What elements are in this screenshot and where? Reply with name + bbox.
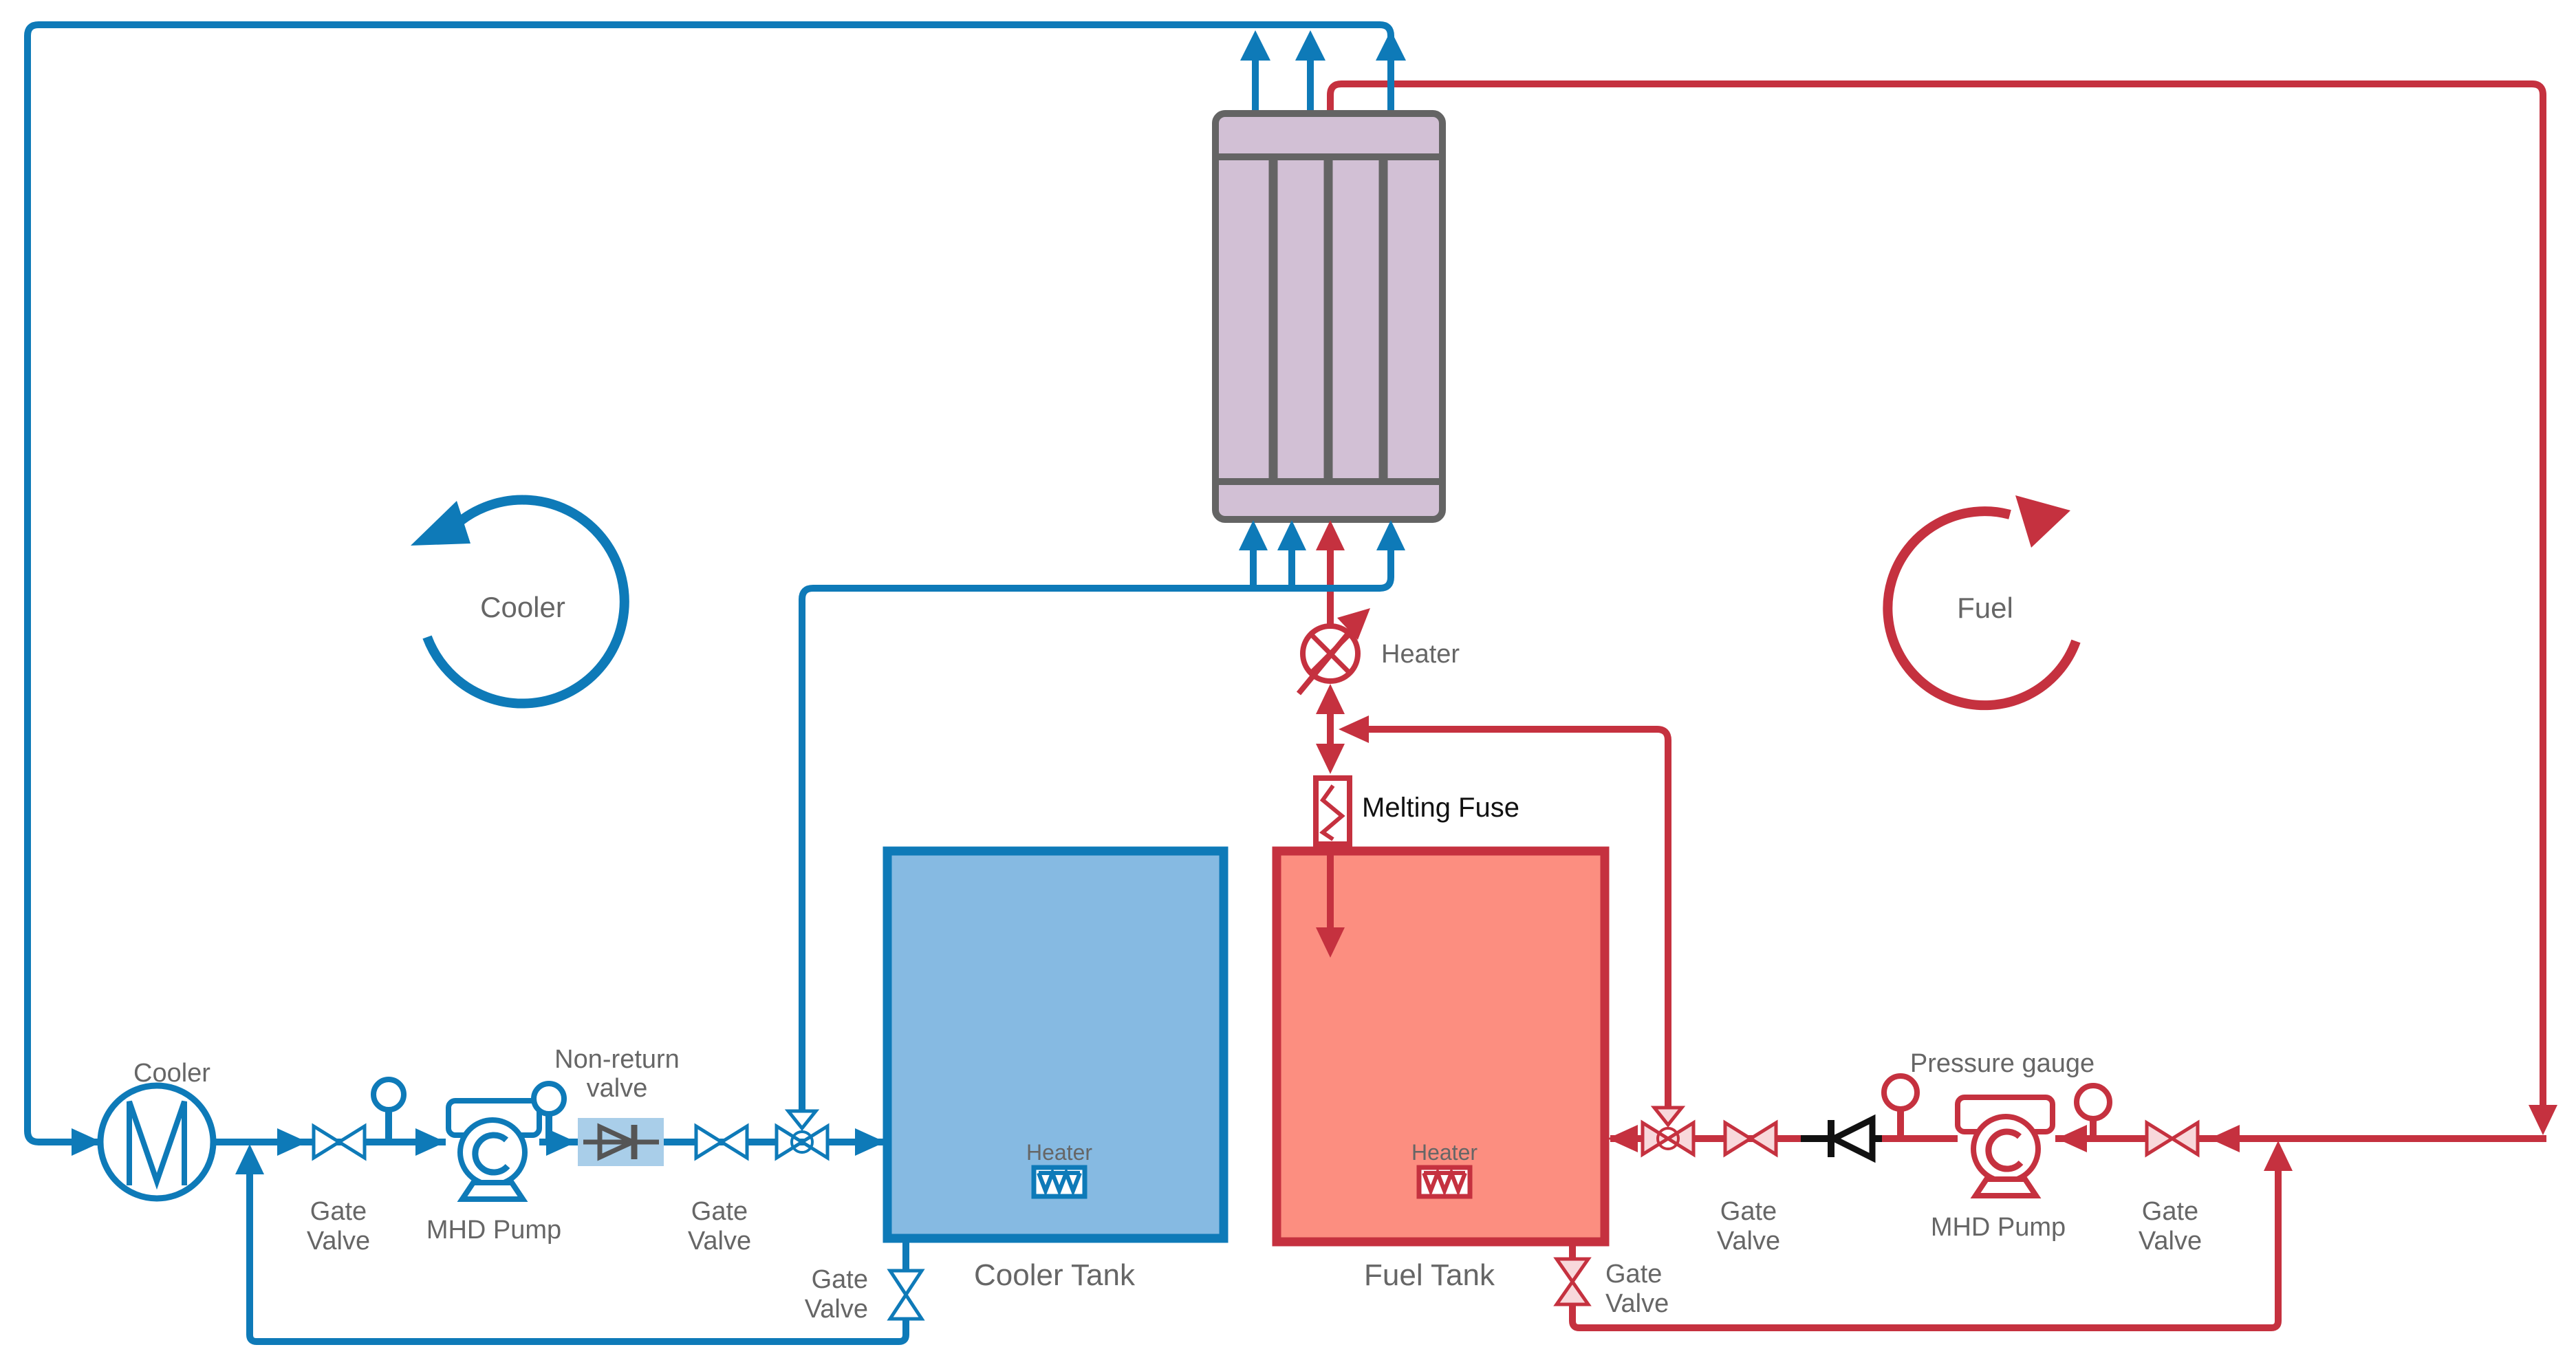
gauge-icon [534, 1084, 564, 1114]
gate-valve-label: Gate [2142, 1197, 2198, 1226]
pressure-gauge-icon [1884, 1076, 1917, 1109]
fuel-loop-label: Fuel [1957, 592, 2013, 624]
check-valve-black [1831, 1119, 1872, 1158]
melting-fuse-label: Melting Fuse [1362, 793, 1519, 823]
flow-arrow-icon [2057, 1125, 2087, 1152]
gate-valve-label: Gate [812, 1265, 868, 1294]
gauge-icon [2077, 1086, 2110, 1119]
gauge-icon [374, 1079, 404, 1110]
fuel-loop-arrowhead-icon [2015, 495, 2070, 548]
flow-arrow-icon [1608, 1125, 1638, 1152]
mhd-pump-fuel: MHD Pump [1931, 1097, 2066, 1242]
piping-diagram: Heater Cooler Tank Heater Fuel Tank Cool… [0, 0, 2576, 1367]
gate-valve-label: Gate [310, 1197, 367, 1226]
flow-arrow-icon [2529, 1105, 2557, 1135]
pump-base-icon [1976, 1179, 2036, 1196]
gate-valve-fuel-1: Gate Valve [1717, 1123, 1780, 1256]
fuel-tank: Heater Fuel Tank [1277, 851, 1605, 1292]
pressure-gauge-label: Pressure gauge [1910, 1049, 2095, 1078]
heater-label: Heater [1381, 640, 1460, 669]
heat-exchanger [1215, 114, 1442, 519]
mhd-pump-label: MHD Pump [426, 1216, 561, 1245]
melting-fuse: Melting Fuse [1316, 778, 1519, 844]
gate-valve-label: Valve [688, 1227, 751, 1256]
cooler-loop-arrowhead-icon [411, 501, 470, 546]
gate-valve-label: Valve [805, 1295, 868, 1324]
gate-valve-label: Valve [2139, 1227, 2202, 1256]
flow-arrow-icon [235, 1144, 264, 1174]
non-return-valve-label: Non-return [554, 1045, 680, 1074]
gate-valve-cooler-1: Gate Valve [307, 1126, 370, 1256]
cooler-loop-arrow: Cooler [411, 500, 625, 704]
cooler-unit-label: Cooler [133, 1059, 210, 1088]
cooler-tank-heater-label: Heater [1026, 1140, 1092, 1165]
cooler-tank: Heater Cooler Tank [887, 851, 1224, 1292]
cooler-unit: Cooler [100, 1059, 213, 1198]
flow-arrow-icon [1239, 520, 1268, 550]
gate-valve-label: Valve [1605, 1289, 1669, 1318]
non-return-valve-label: valve [587, 1074, 648, 1103]
instrument-gauge-blue-1 [374, 1079, 404, 1142]
cooler-tank-label: Cooler Tank [974, 1258, 1136, 1292]
flow-arrow-icon [72, 1128, 102, 1156]
flow-arrow-icon [855, 1128, 885, 1156]
flow-arrow-icon [2209, 1125, 2240, 1152]
fuel-tank-label: Fuel Tank [1364, 1258, 1495, 1292]
flow-arrow-icon [1316, 684, 1345, 714]
check-valve-icon [1834, 1119, 1872, 1158]
flow-arrow-icon [1376, 30, 1406, 61]
gate-valve-cooler-tank-bottom: Gate Valve [805, 1265, 922, 1324]
mhd-pump-cooler: MHD Pump [426, 1101, 561, 1245]
gate-valve-cooler-2: Gate Valve [688, 1126, 751, 1256]
gate-valve-label: Gate [1720, 1197, 1777, 1226]
gate-valve-label: Gate [691, 1197, 748, 1226]
gate-valve-fuel-2: Gate Valve [2139, 1123, 2202, 1256]
three-way-valve-fuel [1643, 1108, 1693, 1154]
cooler-tank-heater-icon [1034, 1167, 1085, 1196]
gate-valve-label: Gate [1605, 1260, 1662, 1289]
flow-arrow-icon [415, 1128, 446, 1156]
inline-heater: Heater [1299, 608, 1460, 693]
mhd-pump-label: MHD Pump [1931, 1213, 2066, 1242]
non-return-valve: Non-return valve [554, 1045, 680, 1166]
flow-arrow-icon [1240, 30, 1270, 61]
fuel-tank-heater-label: Heater [1411, 1140, 1478, 1165]
flow-arrow-icon [1277, 520, 1306, 550]
fuel-tank-heater-icon [1419, 1167, 1470, 1196]
flow-arrow-icon [1376, 520, 1405, 550]
flow-arrow-icon [546, 1128, 576, 1156]
piping-diagram-canvas: Heater Cooler Tank Heater Fuel Tank Cool… [0, 0, 2576, 1367]
flow-arrow-icon [277, 1128, 307, 1156]
cooler-loop-label: Cooler [480, 591, 565, 623]
flow-arrow-icon [1339, 715, 1369, 743]
flow-arrow-icon [2264, 1141, 2293, 1171]
gate-valve-label: Valve [307, 1227, 370, 1256]
flow-arrow-icon [1316, 520, 1345, 550]
gate-valve-label: Valve [1717, 1227, 1780, 1256]
fuel-loop-arrow: Fuel [1887, 495, 2076, 705]
pump-base-icon [462, 1183, 523, 1199]
flow-arrow-icon [1316, 744, 1345, 774]
three-way-valve-cooler [777, 1111, 827, 1158]
flow-arrow-icon [1295, 30, 1325, 61]
